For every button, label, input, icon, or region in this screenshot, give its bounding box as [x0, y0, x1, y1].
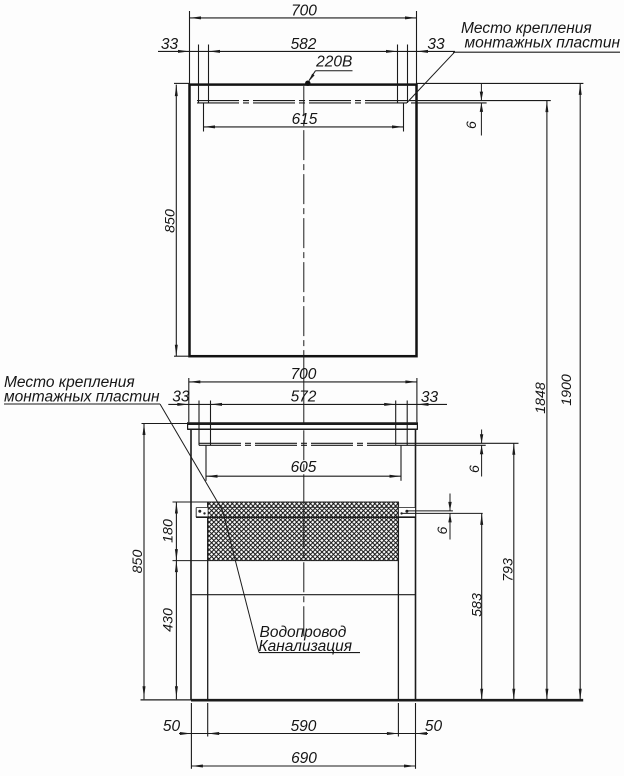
svg-text:850: 850: [130, 550, 146, 574]
svg-text:1848: 1848: [533, 382, 549, 414]
svg-text:430: 430: [160, 608, 176, 632]
svg-text:33: 33: [172, 389, 190, 406]
svg-text:690: 690: [291, 750, 317, 767]
svg-text:33: 33: [427, 36, 445, 53]
svg-text:50: 50: [163, 718, 181, 735]
svg-text:590: 590: [291, 718, 317, 735]
svg-text:33: 33: [161, 36, 179, 53]
svg-text:700: 700: [291, 366, 317, 383]
svg-text:монтажных пластин: монтажных пластин: [4, 388, 160, 405]
svg-text:33: 33: [421, 389, 439, 406]
svg-text:850: 850: [163, 209, 179, 233]
svg-text:6: 6: [435, 526, 451, 534]
svg-text:700: 700: [291, 2, 317, 19]
svg-text:6: 6: [464, 121, 480, 129]
svg-text:180: 180: [160, 519, 176, 543]
svg-text:50: 50: [425, 718, 443, 735]
svg-text:1900: 1900: [559, 374, 575, 406]
svg-text:583: 583: [470, 593, 486, 617]
svg-text:6: 6: [467, 465, 483, 473]
svg-text:220В: 220В: [315, 54, 352, 71]
svg-text:605: 605: [291, 459, 317, 476]
svg-text:572: 572: [291, 389, 317, 406]
svg-text:793: 793: [501, 558, 517, 582]
svg-text:582: 582: [291, 36, 317, 53]
svg-text:615: 615: [292, 111, 318, 128]
svg-text:монтажных пластин: монтажных пластин: [465, 35, 621, 52]
